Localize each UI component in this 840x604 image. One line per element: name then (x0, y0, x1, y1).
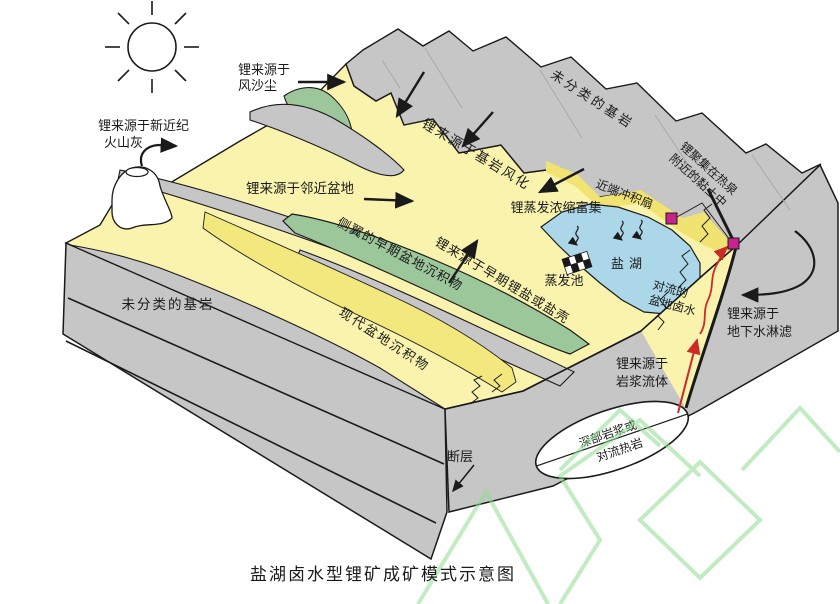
magmatic-label-line2: 岩浆流体 (616, 374, 668, 389)
bedrock-front-label: 未分类的基岩 (122, 296, 215, 312)
fault-label: 断层 (447, 449, 473, 464)
volcanic-ash-arrow (141, 145, 176, 166)
figure-caption: 盐湖卤水型锂矿成矿模式示意图 (250, 565, 516, 584)
groundwater-label-line2: 地下水淋滤 (727, 324, 792, 339)
volcano-crater (126, 168, 148, 177)
volcanic-ash-label-line2: 火山灰 (104, 135, 143, 150)
wind-dust-label-line2: 风沙尘 (238, 78, 277, 93)
magmatic-label-line1: 锂来源于 (616, 356, 668, 371)
sun-icon (105, 1, 199, 93)
evaporation-pond-label: 蒸发池 (544, 273, 583, 288)
evaporation-enrichment-label: 锂蒸发浓缩富集 (510, 200, 601, 215)
volcanic-ash-label-line1: 锂来源于新近纪 (98, 118, 189, 133)
geological-block-diagram: 深部岩浆或 对流热岩 锂来源于 风沙尘 锂来源于新近纪 火山灰 未分类的基 (0, 0, 840, 604)
groundwater-label-line1: 锂来源于 (727, 306, 779, 321)
clay-deposit-square-1 (666, 213, 677, 224)
clay-deposit-square-2 (728, 238, 739, 249)
adjacent-basin-label: 锂来源于邻近盆地 (246, 181, 354, 196)
salt-lake-label: 盐湖 (611, 256, 647, 271)
diagram-canvas: 深部岩浆或 对流热岩 锂来源于 风沙尘 锂来源于新近纪 火山灰 未分类的基 (0, 0, 840, 604)
wind-dust-label-line1: 锂来源于 (238, 62, 290, 77)
